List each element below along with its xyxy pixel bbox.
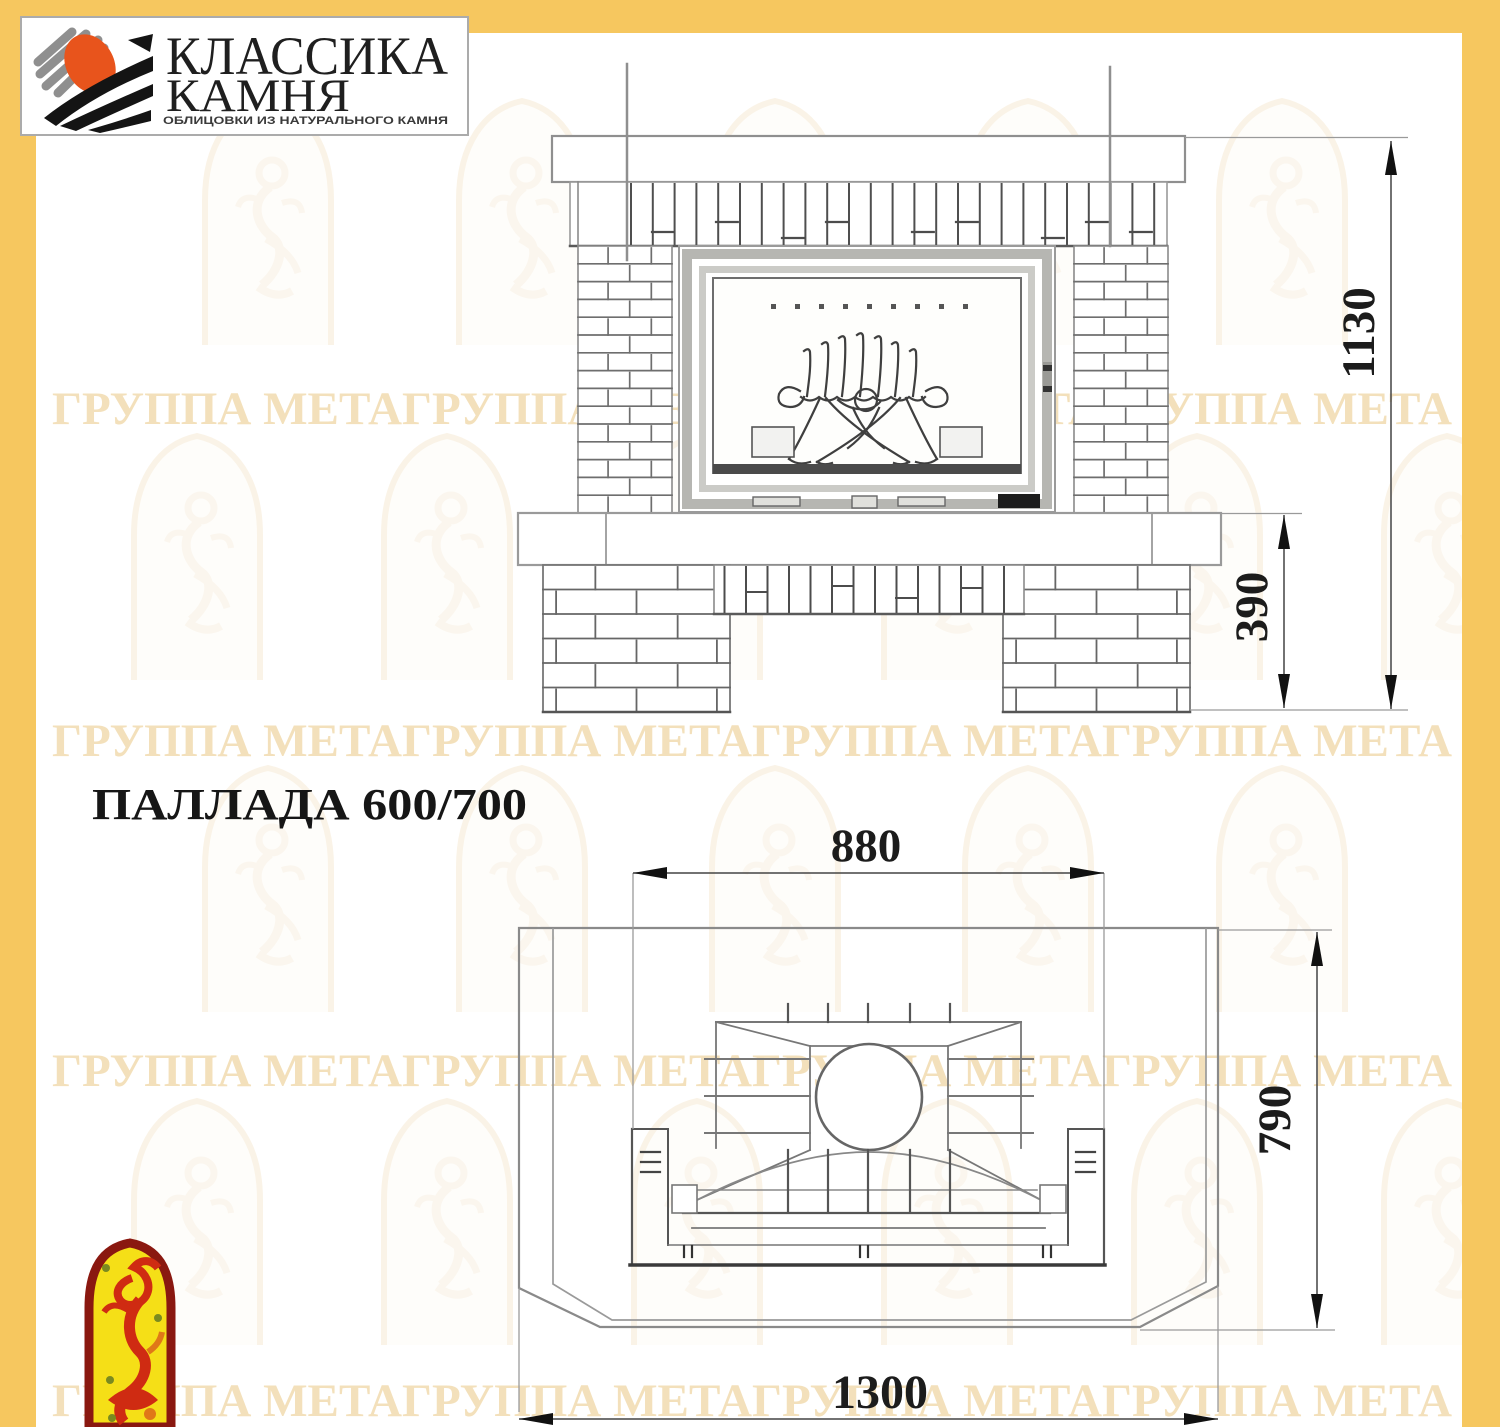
svg-text:390: 390 — [1226, 572, 1278, 643]
svg-text:790: 790 — [1249, 1085, 1301, 1156]
svg-text:1130: 1130 — [1333, 287, 1385, 378]
svg-text:ГРУППА МЕТАГРУППА МЕТАГРУППА М: ГРУППА МЕТАГРУППА МЕТАГРУППА МЕТАГРУППА … — [52, 1045, 1452, 1097]
svg-text:880: 880 — [831, 820, 902, 872]
svg-text:1300: 1300 — [832, 1366, 928, 1419]
svg-text:ОБЛИЦОВКИ ИЗ НАТУРАЛЬНОГО КАМН: ОБЛИЦОВКИ ИЗ НАТУРАЛЬНОГО КАМНЯ — [163, 115, 448, 127]
svg-text:ПАЛЛАДА 600/700: ПАЛЛАДА 600/700 — [92, 780, 527, 829]
svg-text:ГРУППА МЕТАГРУППА МЕТАГРУППА М: ГРУППА МЕТАГРУППА МЕТАГРУППА МЕТАГРУППА … — [52, 715, 1452, 767]
